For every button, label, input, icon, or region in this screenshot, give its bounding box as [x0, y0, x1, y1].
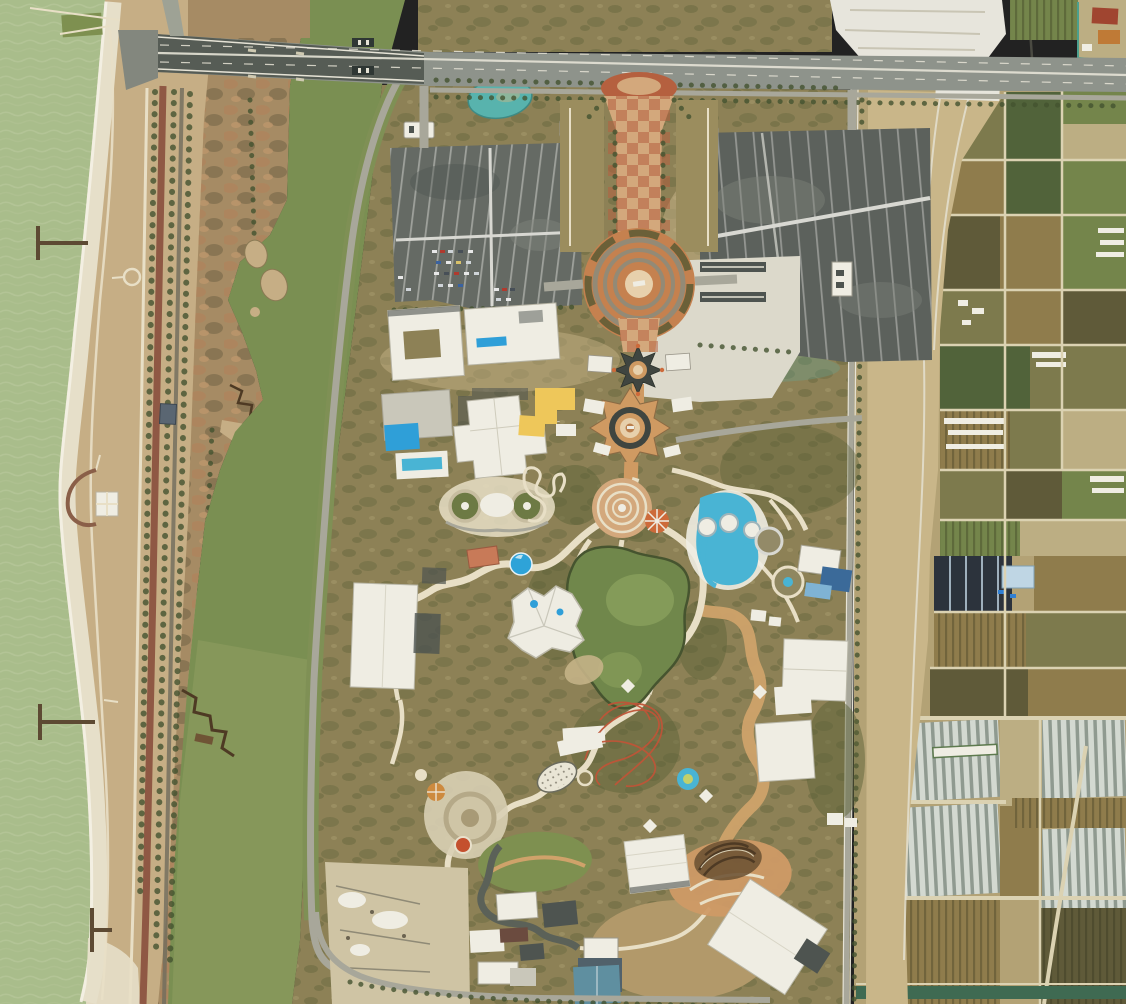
red-roof-building — [467, 546, 499, 568]
south-hall — [624, 835, 690, 894]
satellite-image — [0, 0, 1126, 1004]
field-cells — [930, 90, 1126, 718]
aquarium-mountain — [508, 586, 584, 658]
path-roundabout — [124, 269, 140, 285]
blue-tarp-pool — [384, 423, 420, 451]
slide-tower — [698, 518, 716, 536]
apron-kiosk — [832, 262, 852, 296]
slide-tower — [720, 514, 738, 532]
gatehouse — [159, 404, 176, 425]
northeast-construction — [1078, 0, 1126, 62]
cyan-pool — [402, 457, 443, 471]
red-flower-ride — [455, 837, 471, 853]
aerial-scene — [0, 0, 1126, 1004]
parasol-ride — [645, 509, 669, 533]
donut-pool — [677, 768, 699, 790]
spiral-plaza — [592, 478, 652, 538]
southwest-construction — [325, 862, 470, 1004]
